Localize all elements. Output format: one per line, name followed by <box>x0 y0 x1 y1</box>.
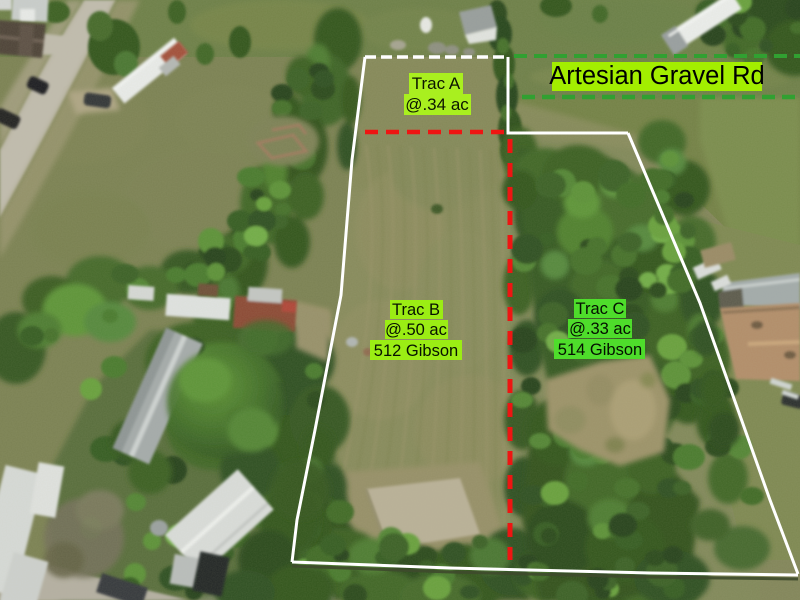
svg-text:@.33 ac: @.33 ac <box>569 320 631 338</box>
svg-text:Artesian Gravel Rd: Artesian Gravel Rd <box>549 62 764 90</box>
svg-text:Trac C: Trac C <box>576 300 625 318</box>
svg-text:Trac A: Trac A <box>412 74 461 93</box>
svg-text:512 Gibson: 512 Gibson <box>374 342 458 360</box>
svg-text:@.34 ac: @.34 ac <box>405 95 469 114</box>
svg-text:@.50 ac: @.50 ac <box>385 321 447 339</box>
svg-text:514 Gibson: 514 Gibson <box>558 341 642 359</box>
svg-text:Trac B: Trac B <box>392 301 440 319</box>
